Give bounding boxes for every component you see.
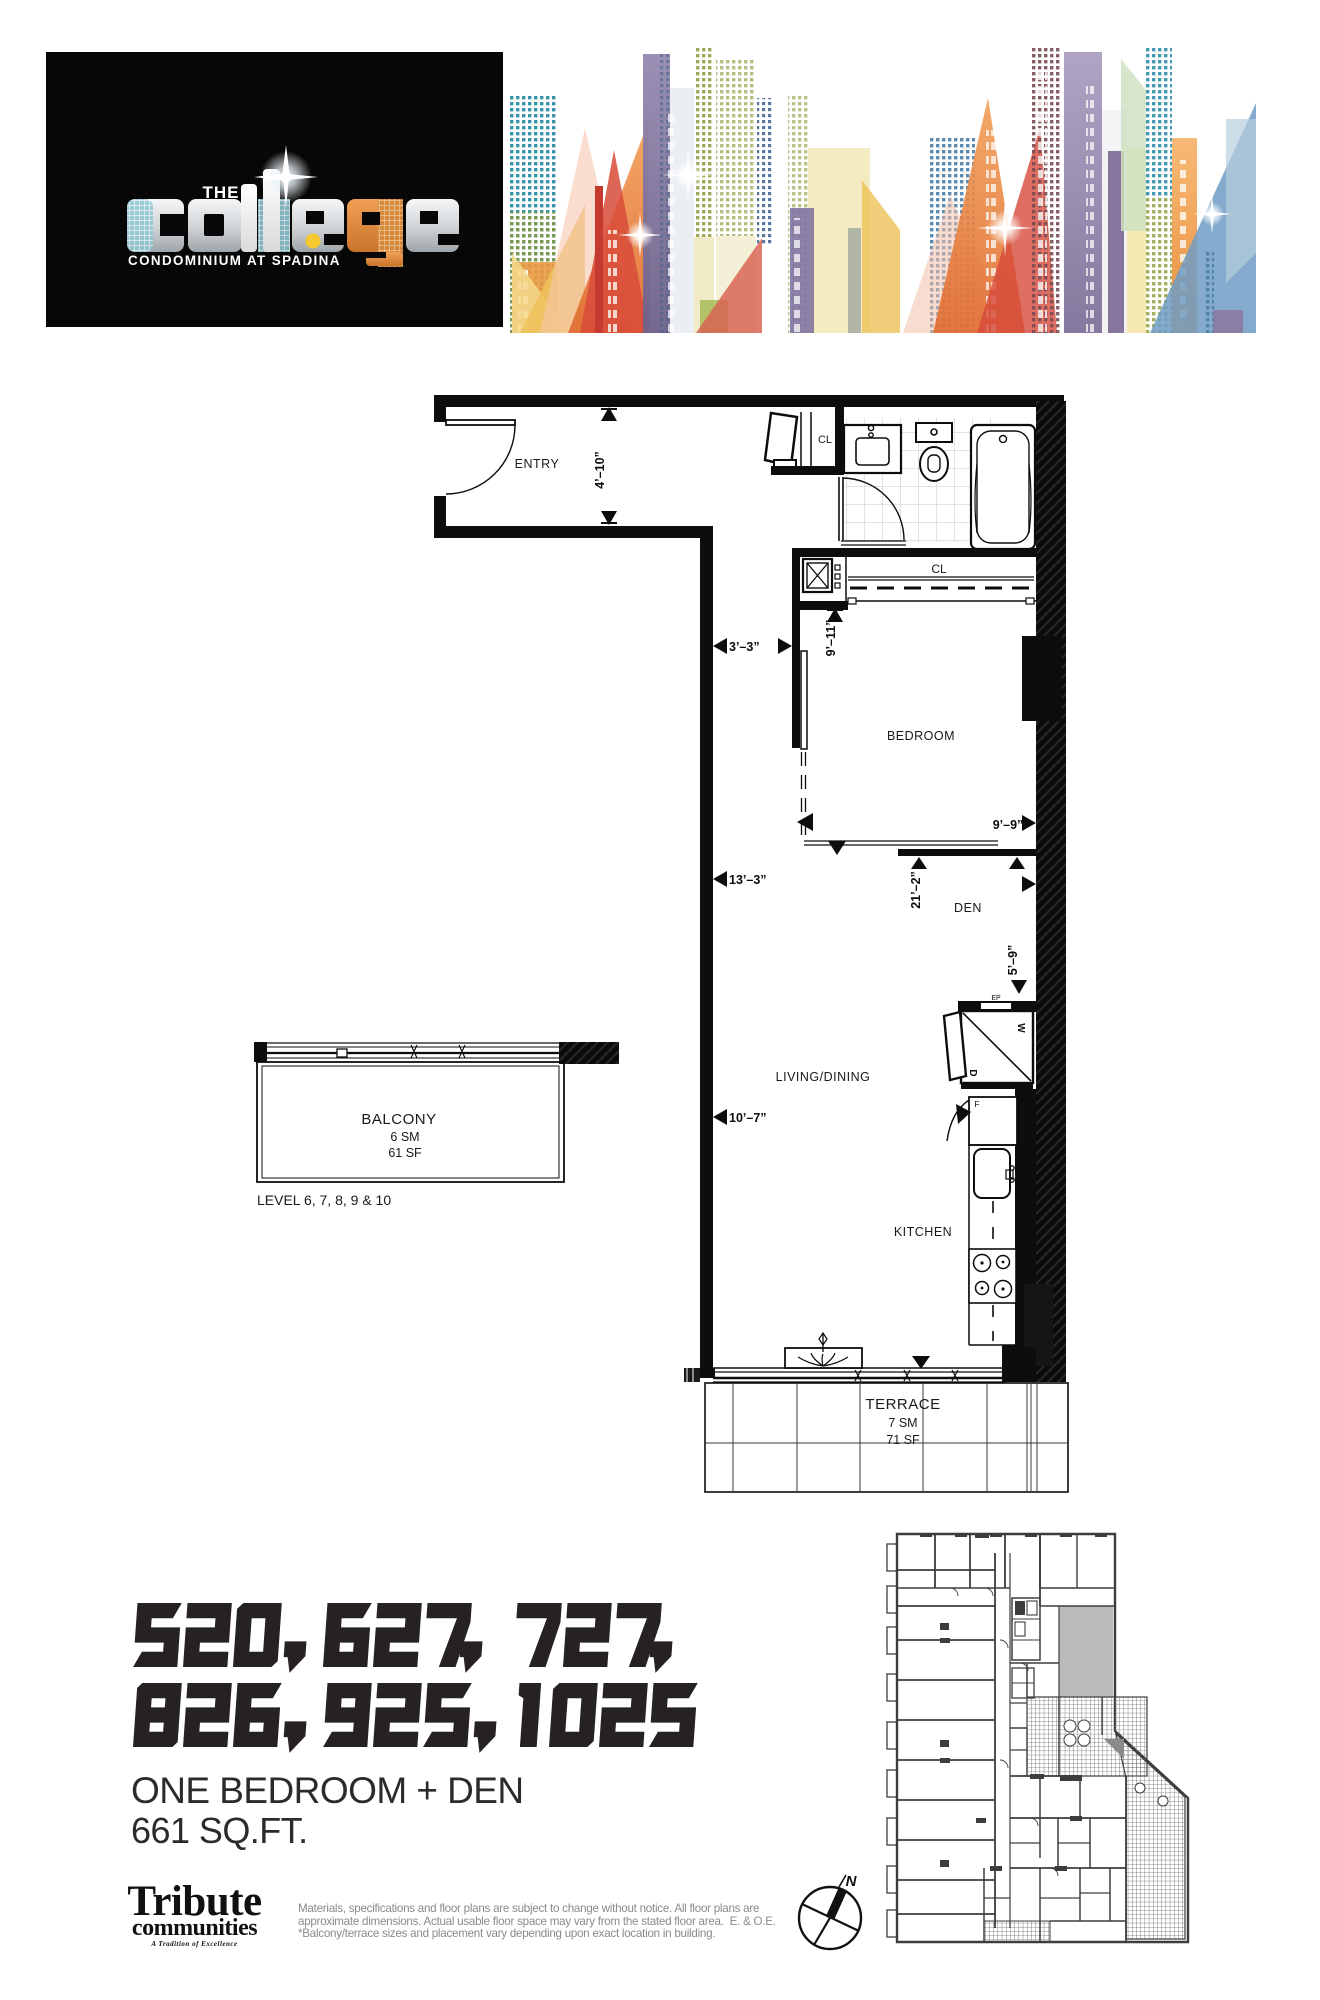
svg-text:TERRACE: TERRACE xyxy=(865,1396,940,1413)
svg-text:DEN: DEN xyxy=(954,901,982,915)
svg-text:9’–9”: 9’–9” xyxy=(993,818,1024,832)
svg-text:BALCONY: BALCONY xyxy=(361,1111,436,1128)
svg-text:7 SM: 7 SM xyxy=(888,1416,917,1430)
svg-text:BEDROOM: BEDROOM xyxy=(887,729,955,743)
svg-text:21’–2”: 21’–2” xyxy=(909,871,923,909)
svg-text:4’–10”: 4’–10” xyxy=(593,451,607,489)
svg-text:F: F xyxy=(974,1099,979,1109)
svg-text:CONDOMINIUM AT SPADINA: CONDOMINIUM AT SPADINA xyxy=(128,253,341,268)
svg-text:EP: EP xyxy=(991,995,1001,1002)
svg-text:LEVEL 6, 7, 8, 9 & 10: LEVEL 6, 7, 8, 9 & 10 xyxy=(257,1192,391,1208)
svg-text:3’–3”: 3’–3” xyxy=(729,640,760,654)
svg-text:LIVING/DINING: LIVING/DINING xyxy=(776,1070,871,1084)
svg-text:CL: CL xyxy=(818,434,832,446)
svg-text:13’–3”: 13’–3” xyxy=(729,873,767,887)
svg-text:6 SM: 6 SM xyxy=(390,1130,419,1144)
svg-text:71 SF: 71 SF xyxy=(886,1433,920,1447)
svg-text:ENTRY: ENTRY xyxy=(515,457,560,471)
svg-text:5’–9”: 5’–9” xyxy=(1006,945,1020,976)
svg-text:D: D xyxy=(967,1069,978,1076)
svg-text:10’–7”: 10’–7” xyxy=(729,1111,767,1125)
svg-text:61 SF: 61 SF xyxy=(388,1146,422,1160)
svg-text:CL: CL xyxy=(931,562,947,576)
svg-text:W: W xyxy=(1015,1023,1026,1033)
svg-text:KITCHEN: KITCHEN xyxy=(894,1225,952,1239)
svg-text:N: N xyxy=(846,1873,858,1890)
svg-text:9’–11”: 9’–11” xyxy=(824,620,838,657)
